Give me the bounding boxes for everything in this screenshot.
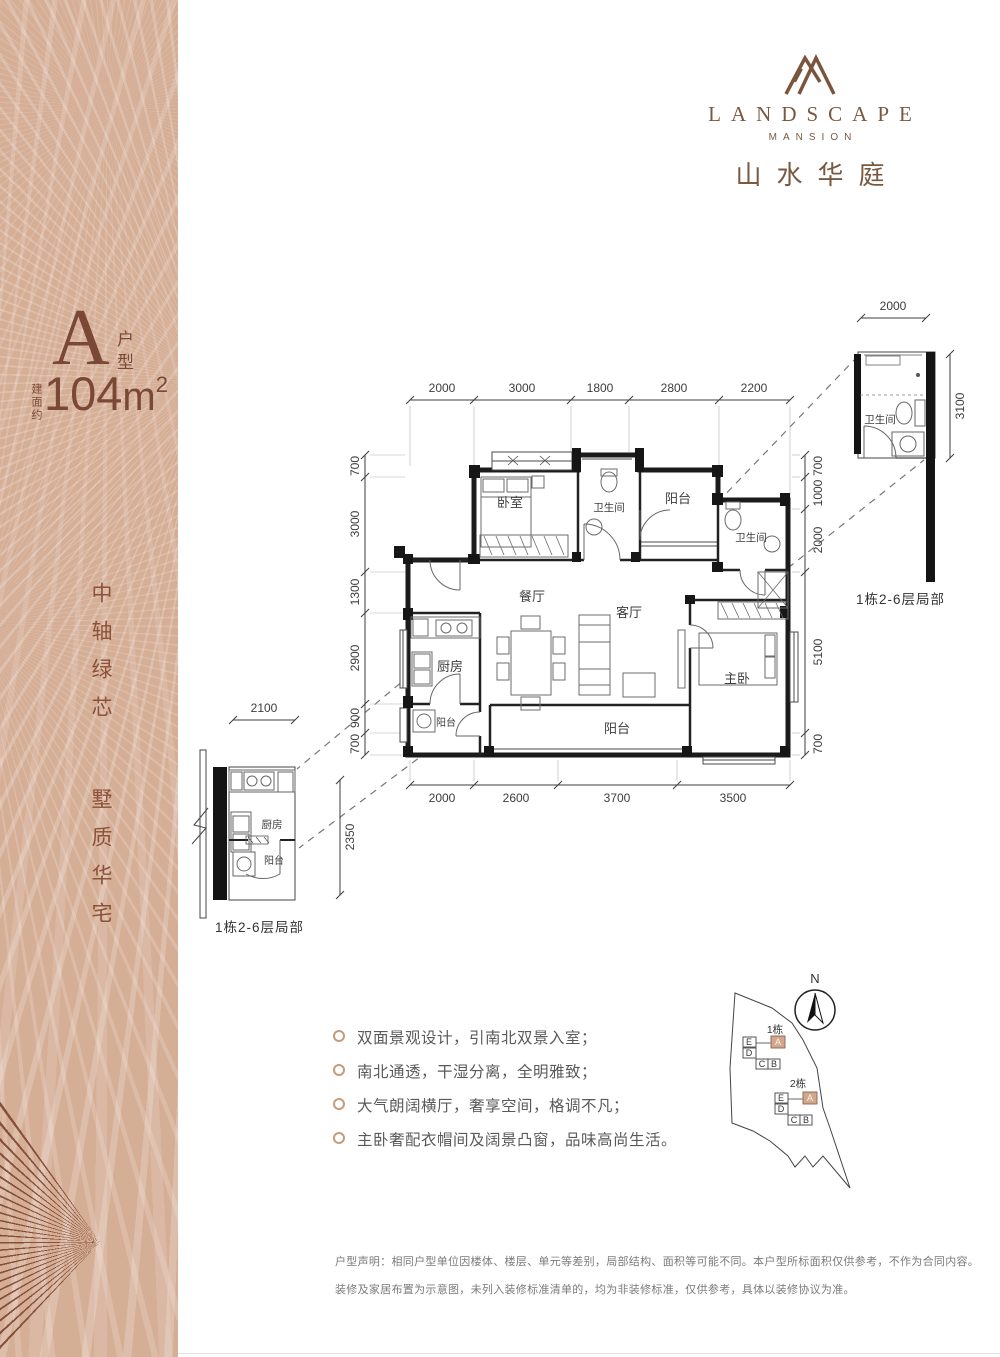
dim-left-4: 900	[348, 708, 362, 728]
room-label-living: 客厅	[616, 605, 642, 620]
unit-letter: E	[778, 1093, 784, 1103]
detail-kitchen-dim-width: 2100	[251, 701, 278, 715]
dim-top-0: 2000	[429, 381, 456, 395]
unit-type-char1: 户	[117, 331, 134, 348]
dim-left-2: 1300	[348, 578, 362, 605]
unit-letter: C	[791, 1115, 798, 1125]
detail-kitchen-balcony-label: 阳台	[264, 854, 284, 867]
bottom-divider	[178, 1353, 1000, 1354]
unit-area: 104m2	[44, 370, 168, 420]
area-unit: m	[122, 375, 155, 419]
bullet-ring-icon	[333, 1098, 345, 1110]
detail-bath-dim-width: 2000	[880, 299, 907, 313]
dim-top-3: 2800	[661, 381, 688, 395]
unit-letter: D	[778, 1104, 785, 1114]
detail-plan-kitchen: 厨房 阳台 2100 2350 1栋2-6层局部	[192, 701, 357, 935]
detail-kitchen-dim-height: 2350	[343, 823, 357, 850]
dim-bottom-2: 3700	[604, 791, 631, 805]
detail-bath-room-label: 卫生间	[864, 413, 896, 426]
room-label-kitchen: 厨房	[437, 659, 463, 674]
dim-left-0: 700	[348, 456, 362, 476]
bullet-ring-icon	[333, 1064, 345, 1076]
room-label-bath-top: 卫生间	[593, 501, 625, 514]
unit-letter: A	[807, 1093, 813, 1103]
floor-plan: 卧室 卫生间 阳台 卫生间 餐厅 客厅 厨房 阳台 阳台 主卧	[180, 280, 1000, 960]
exterior-walls	[408, 455, 788, 755]
feature-item: 南北通透，干湿分离，全明雅致；	[333, 1060, 677, 1082]
feature-text: 大气朗阔横厅，奢享空间，格调不凡；	[357, 1094, 629, 1116]
dim-top-4: 2200	[741, 381, 768, 395]
area-number: 104	[44, 367, 122, 420]
north-label: N	[810, 971, 819, 986]
unit-letter: B	[803, 1115, 809, 1125]
disclaimer-line-1: 户型声明：相同户型单位因楼体、楼层、单元等差别，局部结构、面积等可能不同。本户型…	[335, 1248, 983, 1276]
brand-logo: LANDSCAPE MANSION 山水华庭	[680, 52, 940, 192]
feature-text: 主卧奢配衣帽间及阔景凸窗，品味高尚生活。	[357, 1128, 677, 1150]
bullet-ring-icon	[333, 1030, 345, 1042]
room-label-bedroom: 卧室	[497, 495, 523, 510]
poster-page: LANDSCAPE MANSION 山水华庭 A 户 型 建面约 104m2 中…	[0, 0, 1000, 1357]
disclaimer: 户型声明：相同户型单位因楼体、楼层、单元等差别，局部结构、面积等可能不同。本户型…	[335, 1248, 983, 1304]
room-label-balcony-north: 阳台	[665, 491, 691, 506]
detail-bath-caption: 1栋2-6层局部	[856, 592, 945, 607]
unit-type-letter: A	[52, 298, 110, 378]
dim-bottom-1: 2600	[503, 791, 530, 805]
dim-right-0: 700	[811, 456, 825, 476]
dimensions-bottom: 2000 2600 3700 3500	[429, 791, 747, 805]
dimensions-right: 700 1000 2000 5100 700	[811, 456, 825, 754]
building-cluster-2: 2栋 E D A C B	[775, 1077, 817, 1125]
detail-kitchen-room-label: 厨房	[262, 818, 283, 831]
dim-right-1: 1000	[811, 479, 825, 506]
room-label-kitchen-balcony: 阳台	[436, 716, 456, 729]
feature-item: 大气朗阔横厅，奢享空间，格调不凡；	[333, 1094, 677, 1116]
site-plan: N 1栋 E D A C B 2栋	[715, 963, 980, 1208]
area-prefix: 建面约	[28, 383, 44, 422]
dim-bottom-0: 2000	[429, 791, 456, 805]
north-arrow-icon	[795, 990, 835, 1030]
dim-top-1: 3000	[509, 381, 536, 395]
unit-letter: C	[759, 1059, 766, 1069]
slogan-line-2: 墅质华宅	[85, 788, 115, 940]
site-boundary	[730, 993, 850, 1188]
unit-letter: A	[775, 1037, 781, 1047]
dim-left-5: 700	[348, 734, 362, 754]
mountain-logo-icon	[783, 52, 837, 96]
fan-pattern	[0, 1090, 178, 1357]
feature-text: 南北通透，干湿分离，全明雅致；	[357, 1060, 597, 1082]
brand-subtitle: MANSION	[680, 132, 940, 143]
dimensions-left: 700 3000 1300 2900 900 700	[348, 456, 362, 754]
unit-letter: B	[771, 1059, 777, 1069]
detail-plan-bath: 卫生间 2000 3100 1栋2-6层局部	[854, 299, 967, 607]
dim-right-4: 700	[811, 734, 825, 754]
bullet-ring-icon	[333, 1132, 345, 1144]
feature-item: 双面景观设计，引南北双景入室；	[333, 1026, 677, 1048]
building-cluster-1: 1栋 E D A C B	[743, 1023, 785, 1069]
detail-bath-dim-height: 3100	[953, 392, 967, 419]
dim-left-3: 2900	[348, 644, 362, 671]
cluster1-label: 1栋	[767, 1023, 784, 1036]
disclaimer-line-2: 装修及家居布置为示意图，未列入装修标准清单的，均为非装修标准，仅供参考，具体以装…	[335, 1276, 983, 1304]
dimensions-top: 2000 3000 1800 2800 2200	[429, 381, 768, 395]
unit-letter: E	[746, 1037, 752, 1047]
feature-text: 双面景观设计，引南北双景入室；	[357, 1026, 597, 1048]
dim-bottom-3: 3500	[720, 791, 747, 805]
feature-list: 双面景观设计，引南北双景入室； 南北通透，干湿分离，全明雅致； 大气朗阔横厅，奢…	[333, 1026, 677, 1162]
room-label-dining: 餐厅	[519, 589, 545, 604]
room-label-master: 主卧	[724, 671, 750, 686]
cluster2-label: 2栋	[790, 1077, 807, 1090]
slogan-line-1: 中轴绿芯	[85, 582, 115, 734]
dim-left-1: 3000	[348, 510, 362, 537]
feature-item: 主卧奢配衣帽间及阔景凸窗，品味高尚生活。	[333, 1128, 677, 1150]
dim-right-3: 5100	[811, 638, 825, 665]
dim-top-2: 1800	[587, 381, 614, 395]
brand-name-cn: 山水华庭	[680, 155, 940, 192]
area-exponent: 2	[156, 372, 168, 397]
dim-right-2: 2000	[811, 526, 825, 553]
detail-kitchen-caption: 1栋2-6层局部	[215, 920, 304, 935]
unit-letter: D	[746, 1048, 753, 1058]
room-label-bath-right: 卫生间	[735, 531, 767, 544]
room-label-balcony-south: 阳台	[604, 721, 630, 736]
brand-name-en: LANDSCAPE	[680, 102, 940, 127]
